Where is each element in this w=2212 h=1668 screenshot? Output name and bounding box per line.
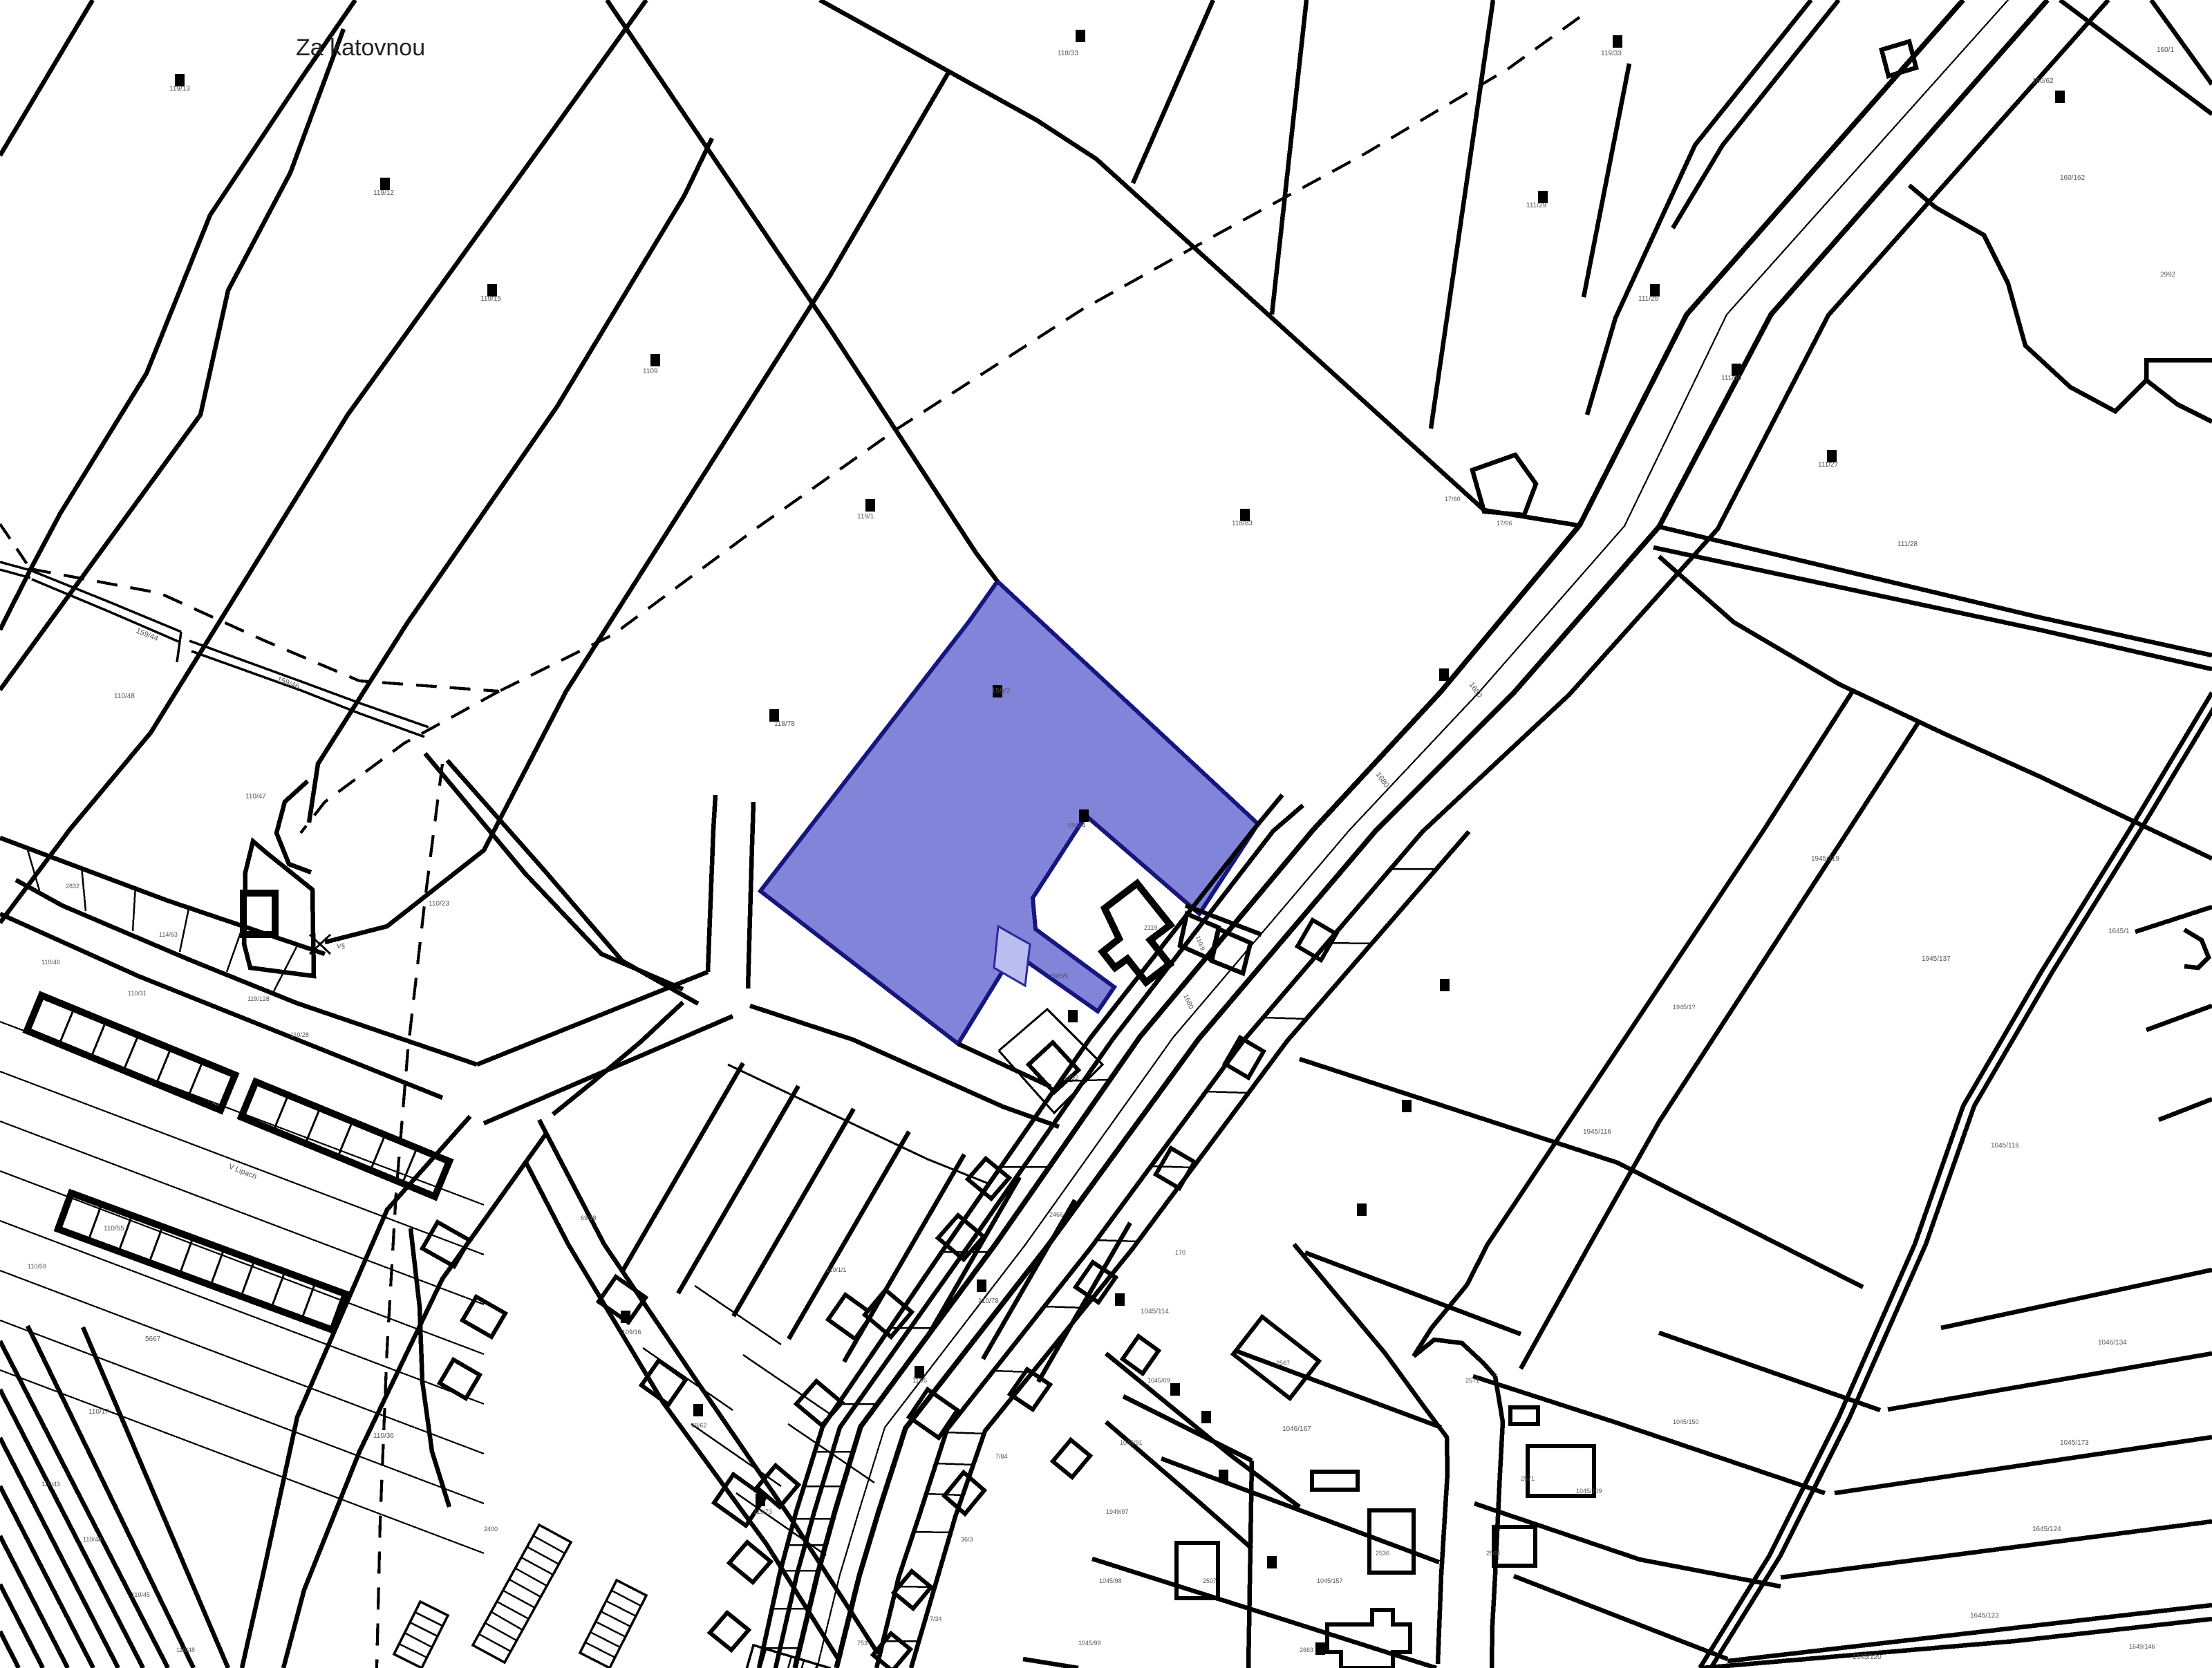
svg-text:V§: V§ xyxy=(337,943,345,950)
svg-text:69/5/4: 69/5/4 xyxy=(1068,822,1085,829)
svg-text:7/34: 7/34 xyxy=(930,1615,942,1622)
svg-text:111/5: 111/5 xyxy=(912,1377,927,1384)
svg-text:1645/124: 1645/124 xyxy=(2032,1526,2061,1533)
svg-text:170: 170 xyxy=(1175,1249,1185,1256)
svg-text:2992: 2992 xyxy=(2160,271,2176,279)
svg-text:119/1: 119/1 xyxy=(857,513,874,521)
svg-text:110/48: 110/48 xyxy=(176,1647,195,1653)
svg-text:110/47: 110/47 xyxy=(245,793,266,800)
svg-text:110/78: 110/78 xyxy=(978,1297,999,1305)
svg-text:69/5/5: 69/5/5 xyxy=(1051,973,1068,980)
svg-text:160/162: 160/162 xyxy=(2060,174,2086,182)
svg-text:118/83: 118/83 xyxy=(1232,520,1253,527)
svg-text:2466: 2466 xyxy=(1049,1211,1063,1218)
svg-text:1046/134: 1046/134 xyxy=(2098,1339,2127,1347)
svg-text:1045/109: 1045/109 xyxy=(1576,1488,1602,1494)
svg-text:7/84: 7/84 xyxy=(995,1453,1008,1460)
svg-text:1045/157: 1045/157 xyxy=(1317,1577,1343,1584)
svg-text:118/78: 118/78 xyxy=(774,720,795,728)
svg-text:1045/173: 1045/173 xyxy=(2060,1439,2089,1447)
svg-text:111/29: 111/29 xyxy=(1526,202,1547,209)
svg-text:2507: 2507 xyxy=(1203,1577,1217,1584)
svg-text:1045/91: 1045/91 xyxy=(1120,1439,1143,1446)
svg-text:2832: 2832 xyxy=(66,883,79,890)
svg-text:110/59: 110/59 xyxy=(28,1263,46,1270)
svg-text:2536: 2536 xyxy=(1376,1550,1389,1557)
svg-text:118/33: 118/33 xyxy=(1058,50,1078,57)
svg-text:Za katovnou: Za katovnou xyxy=(296,35,425,61)
svg-text:2119: 2119 xyxy=(1144,924,1157,931)
svg-text:160/1: 160/1 xyxy=(2157,46,2174,54)
svg-text:119/128: 119/128 xyxy=(247,995,270,1002)
svg-text:110/31: 110/31 xyxy=(128,990,147,997)
svg-text:119/13: 119/13 xyxy=(169,85,190,93)
svg-text:111/28: 111/28 xyxy=(1897,541,1918,548)
svg-text:119/12: 119/12 xyxy=(373,189,394,197)
svg-text:2792: 2792 xyxy=(1065,1074,1078,1081)
svg-text:69/18: 69/18 xyxy=(581,1215,597,1221)
svg-text:110/17: 110/17 xyxy=(88,1408,109,1416)
svg-text:17/66: 17/66 xyxy=(1497,520,1512,527)
svg-text:1945/1?: 1945/1? xyxy=(1673,1004,1696,1011)
svg-text:2400: 2400 xyxy=(484,1526,498,1533)
svg-text:1109: 1109 xyxy=(643,368,658,375)
svg-text:119/73: 119/73 xyxy=(753,1508,772,1515)
svg-text:2663: 2663 xyxy=(1300,1647,1313,1653)
svg-text:1045/114: 1045/114 xyxy=(1141,1308,1169,1315)
svg-text:111/27: 111/27 xyxy=(1818,461,1839,469)
svg-text:119/15: 119/15 xyxy=(480,295,501,303)
svg-text:110/43: 110/43 xyxy=(41,1481,60,1488)
svg-text:110/44: 110/44 xyxy=(83,1536,102,1543)
svg-text:1645/120: 1645/120 xyxy=(1853,1653,1882,1661)
svg-text:119/33: 119/33 xyxy=(1601,50,1622,57)
svg-text:110/45: 110/45 xyxy=(131,1591,150,1598)
svg-text:111/25: 111/25 xyxy=(1638,295,1659,303)
svg-text:114/63: 114/63 xyxy=(159,931,178,938)
svg-text:110/46: 110/46 xyxy=(41,959,60,966)
svg-text:753: 753 xyxy=(857,1640,868,1647)
svg-text:1945/137: 1945/137 xyxy=(1922,955,1951,963)
svg-text:1945/116: 1945/116 xyxy=(1583,1128,1611,1136)
svg-text:1045/99: 1045/99 xyxy=(1078,1640,1101,1647)
svg-text:1949/97: 1949/97 xyxy=(1106,1508,1129,1515)
svg-text:111/09: 111/09 xyxy=(1721,375,1742,382)
svg-text:36/3: 36/3 xyxy=(961,1536,973,1543)
svg-text:17/60: 17/60 xyxy=(1445,496,1461,503)
svg-text:2566: 2566 xyxy=(1486,1550,1500,1557)
svg-text:160/62: 160/62 xyxy=(2032,77,2054,85)
svg-text:1045/09: 1045/09 xyxy=(1147,1377,1170,1384)
svg-text:69/62: 69/62 xyxy=(691,1422,707,1429)
svg-text:110/23: 110/23 xyxy=(429,900,449,908)
svg-text:110/48: 110/48 xyxy=(114,693,135,700)
svg-text:1046/167: 1046/167 xyxy=(1282,1425,1311,1433)
svg-text:110/36: 110/36 xyxy=(373,1432,394,1440)
svg-text:5667: 5667 xyxy=(145,1336,161,1343)
svg-text:109/16: 109/16 xyxy=(622,1329,641,1336)
svg-text:110/28: 110/28 xyxy=(290,1031,309,1038)
svg-text:1045/98: 1045/98 xyxy=(1099,1577,1122,1584)
svg-text:1045/116: 1045/116 xyxy=(1991,1142,2019,1150)
svg-text:1645/1: 1645/1 xyxy=(2108,928,2130,935)
svg-text:110/1/1: 110/1/1 xyxy=(826,1266,846,1273)
svg-text:159/2: 159/2 xyxy=(991,687,1011,695)
svg-text:1945/119: 1945/119 xyxy=(1811,855,1839,863)
svg-text:1045/150: 1045/150 xyxy=(1673,1418,1699,1425)
svg-text:1649/146: 1649/146 xyxy=(2129,1643,2155,1650)
svg-text:1645/123: 1645/123 xyxy=(1970,1612,1999,1620)
svg-text:2571: 2571 xyxy=(1465,1377,1479,1384)
svg-text:2567: 2567 xyxy=(1276,1360,1290,1367)
svg-text:2571: 2571 xyxy=(1521,1475,1535,1482)
svg-text:110/55: 110/55 xyxy=(104,1225,124,1233)
